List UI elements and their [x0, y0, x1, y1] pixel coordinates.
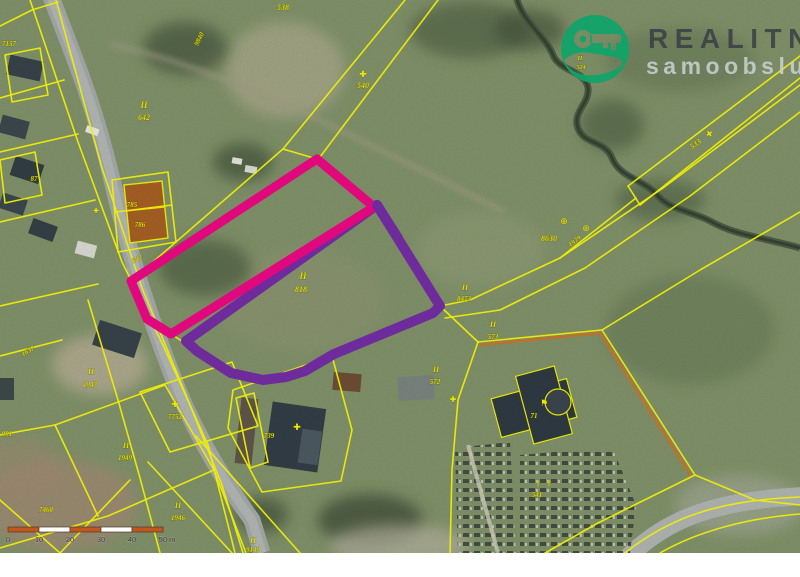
parcel-label: 991: [2, 430, 13, 438]
parcel-label: 785: [127, 201, 138, 209]
map-symbol: ✚: [171, 400, 179, 410]
parcel-label: 7752: [168, 413, 183, 421]
parcel-label: 573: [488, 333, 499, 341]
parcel-label: 87: [31, 175, 39, 183]
parcel-label: 1949: [118, 454, 133, 462]
parcel-label: II: [461, 283, 469, 292]
parcel-label: II: [298, 271, 307, 281]
scale-bar-label: 40: [128, 535, 136, 544]
parcel-label: II: [432, 365, 440, 374]
parcel-label: 1947: [83, 381, 98, 389]
parcel-label: 818: [295, 285, 307, 294]
parcel-label: 1946: [171, 514, 186, 522]
scale-bar-segment: [39, 527, 70, 532]
parcel-label: 7157: [2, 40, 17, 48]
scale-bar-segment: [70, 527, 101, 532]
parcel-label: 739: [264, 432, 275, 440]
parcel-label: 540: [357, 81, 369, 90]
parcel-label: II: [249, 536, 257, 545]
parcel-label: II: [122, 441, 130, 450]
parcel-label: II: [489, 320, 497, 329]
aerial-imagery: [0, 0, 800, 553]
map-canvas[interactable]: ✚⊕⊕✚✚✚⚑††✚✚ 71575389840II642540877857865…: [0, 0, 800, 553]
map-symbol: ✚: [293, 423, 301, 433]
parcel-label: 71: [531, 412, 538, 420]
parcel-label: 642: [138, 113, 150, 122]
parcel-label: II: [139, 100, 148, 110]
scale-bar-segment: [132, 527, 163, 532]
map-symbol: †: [547, 479, 551, 488]
parcel-label: 7468: [39, 506, 54, 514]
map-symbol: ⚑: [540, 399, 548, 409]
key-hole-dot: [580, 36, 586, 42]
parcel-label: 8630: [541, 234, 557, 243]
scale-bar-label: 30: [97, 535, 105, 544]
map-symbol: †: [536, 479, 540, 488]
parcel-label: 572: [430, 378, 441, 386]
parcel-label: 538: [277, 3, 289, 12]
scale-bar-label: 10: [35, 535, 43, 544]
parcel-label: 786: [135, 221, 146, 229]
parcel-label: II: [87, 367, 95, 376]
map-symbol: ⊕: [560, 217, 568, 227]
scale-bar-segment: [101, 527, 132, 532]
map-symbol: ✚: [450, 395, 457, 404]
parcel-label: 541: [532, 491, 543, 499]
scale-bar-label: 0: [6, 535, 10, 544]
scale-bar-segment: [8, 527, 39, 532]
brand-subtitle: samoobsluha: [646, 53, 800, 79]
parcel-label: II: [577, 56, 583, 62]
parcel-label: 524: [577, 65, 586, 71]
scale-bar-label: 20: [66, 535, 74, 544]
map-symbol: ✚: [359, 70, 367, 80]
parcel-label: 8473: [457, 295, 472, 303]
map-symbol: ✚: [93, 207, 99, 215]
parcel-label: 9149: [246, 546, 261, 553]
scale-bar-label: 50 m: [159, 535, 176, 544]
cadastral-map-screenshot: ✚⊕⊕✚✚✚⚑††✚✚ 71575389840II642540877857865…: [0, 0, 800, 577]
brand-title: REALITNÍ: [648, 23, 800, 54]
parcel-label: II: [174, 501, 182, 510]
map-symbol: ⊕: [582, 224, 590, 234]
